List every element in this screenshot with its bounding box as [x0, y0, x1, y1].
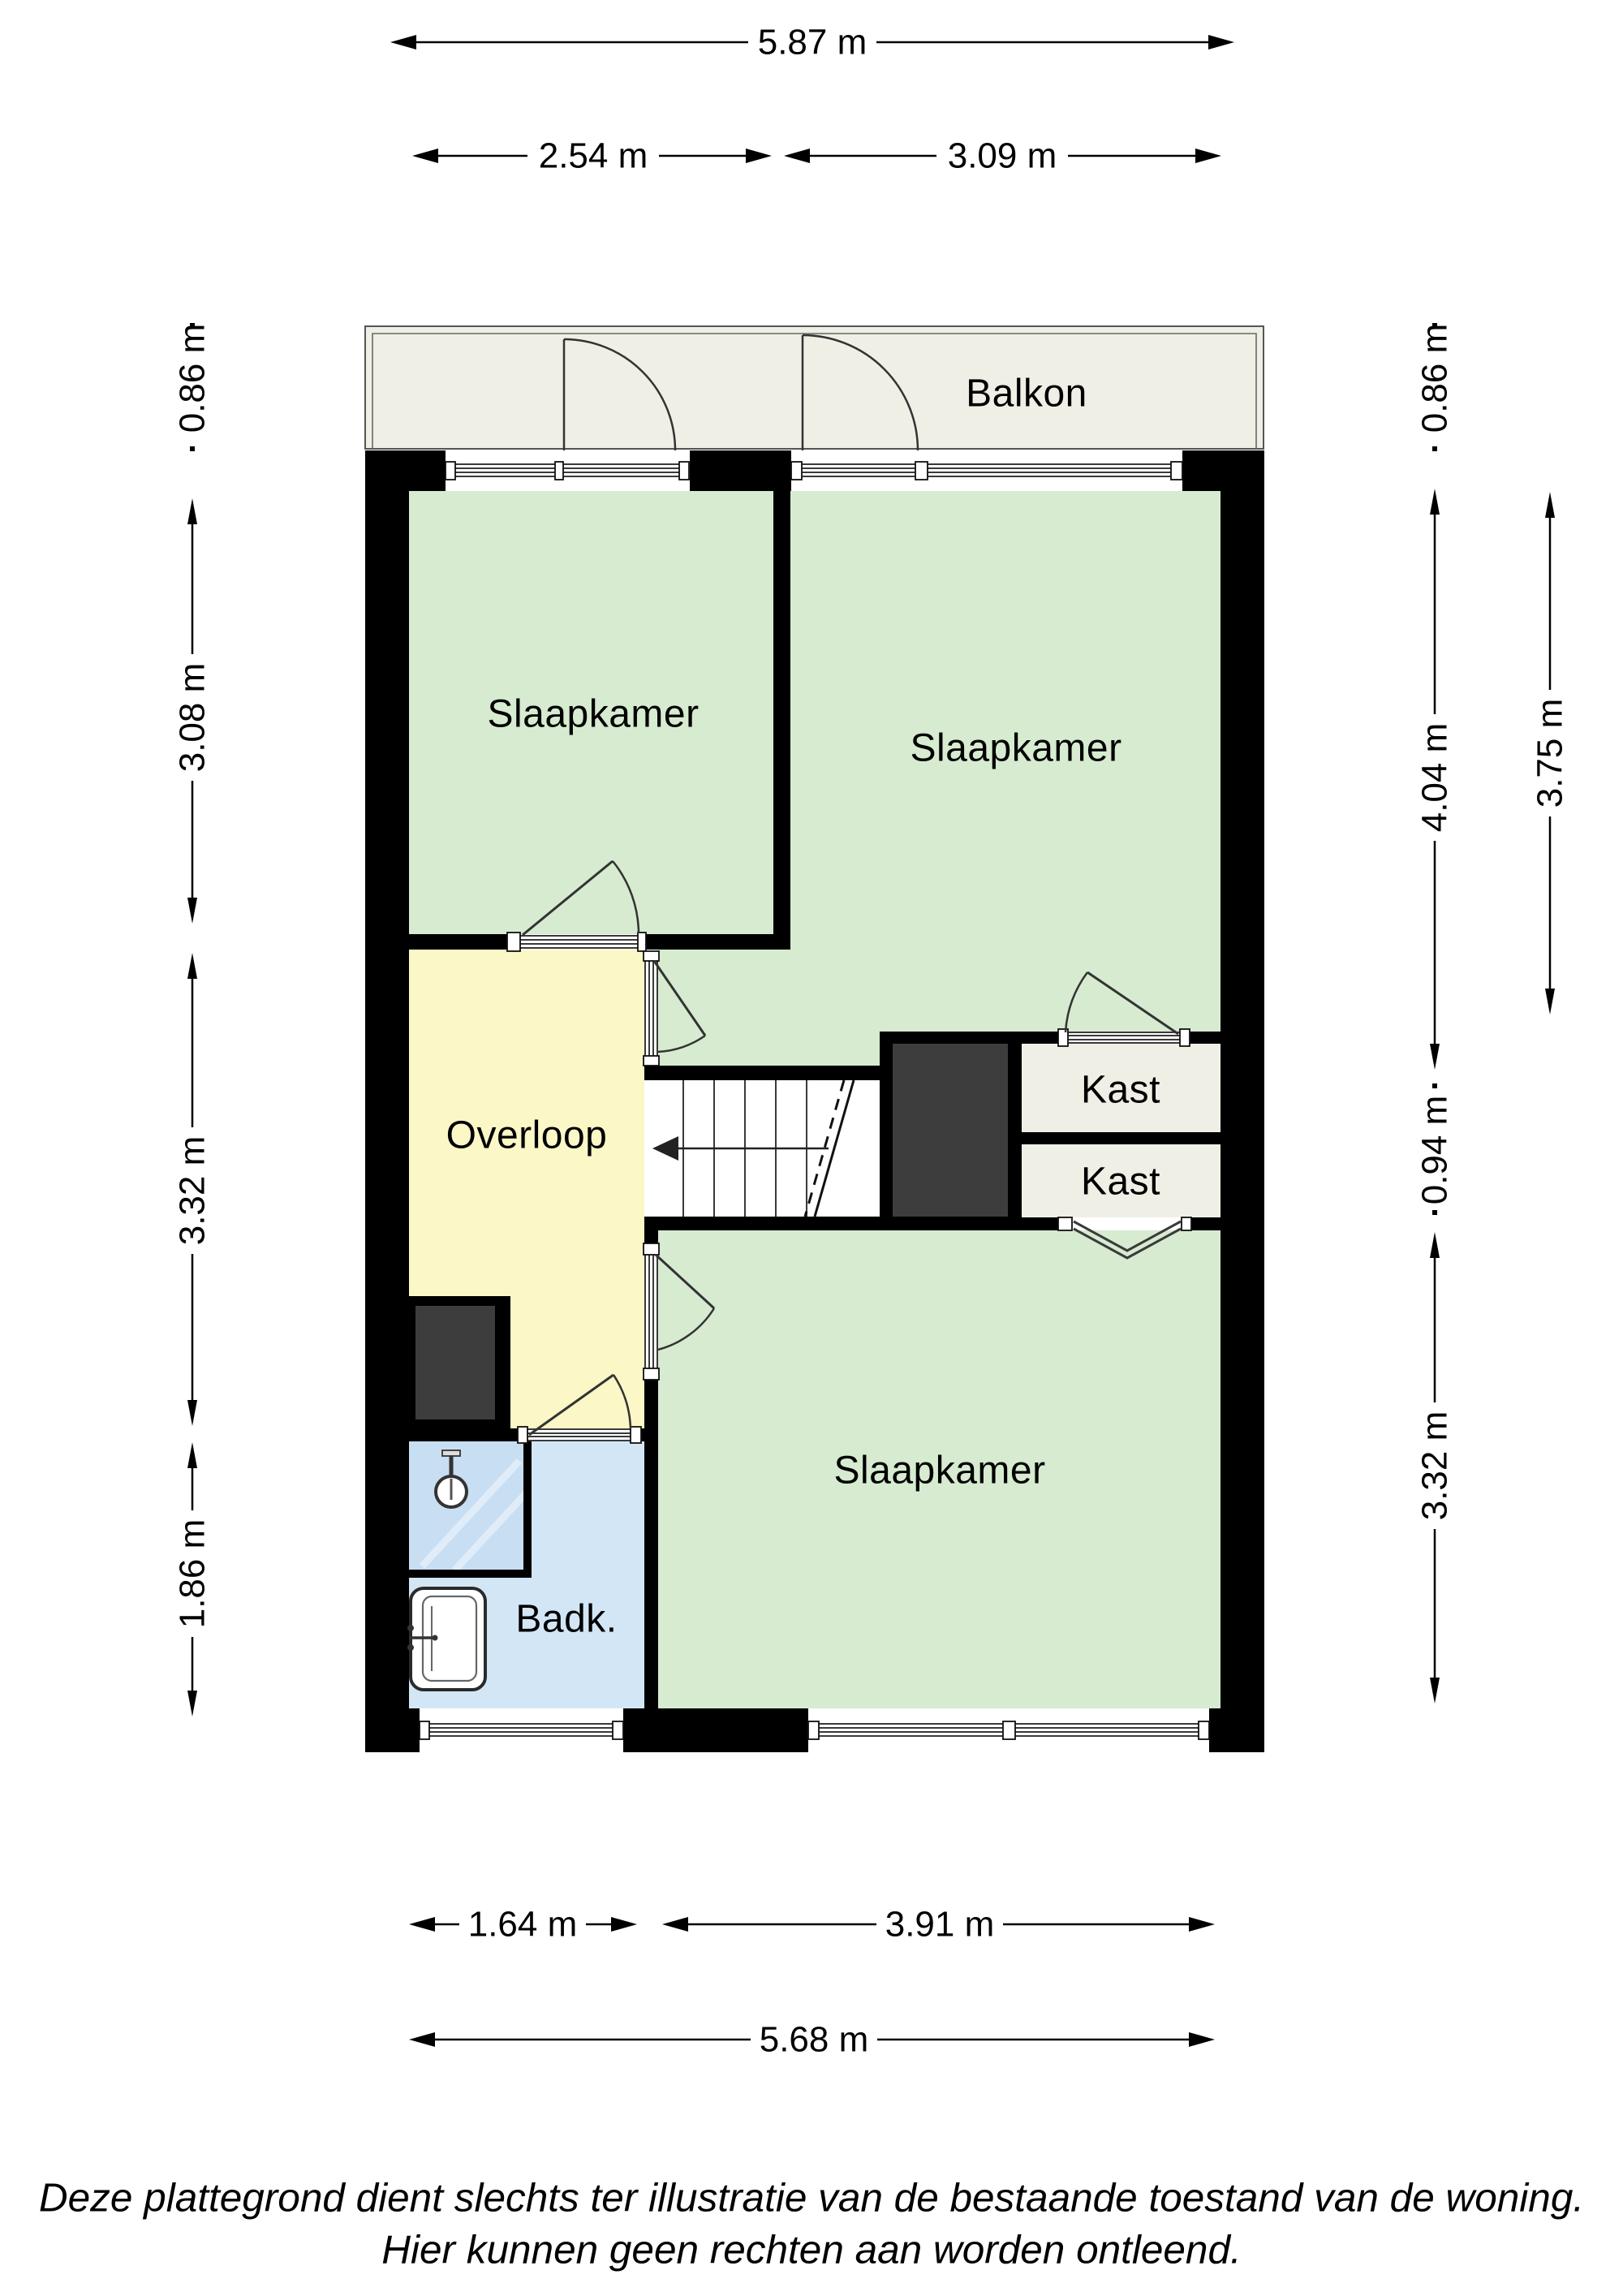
svg-text:4.04 m: 4.04 m	[1415, 723, 1455, 833]
svg-text:0.86 m: 0.86 m	[173, 324, 213, 433]
svg-text:0.86 m: 0.86 m	[1415, 324, 1455, 433]
svg-text:1.86 m: 1.86 m	[173, 1519, 213, 1629]
svg-text:Hier kunnen geen rechten aan w: Hier kunnen geen rechten aan worden ontl…	[381, 2228, 1242, 2272]
svg-text:3.32 m: 3.32 m	[173, 1136, 213, 1246]
svg-text:3.09 m: 3.09 m	[948, 136, 1057, 176]
svg-text:Slaapkamer: Slaapkamer	[910, 727, 1121, 770]
svg-text:3.32 m: 3.32 m	[1415, 1411, 1455, 1521]
svg-text:Kast: Kast	[1081, 1161, 1160, 1204]
svg-text:5.87 m: 5.87 m	[758, 23, 867, 62]
svg-text:0.94 m: 0.94 m	[1415, 1096, 1455, 1205]
svg-text:3.08 m: 3.08 m	[173, 663, 213, 773]
svg-text:3.75 m: 3.75 m	[1530, 699, 1570, 808]
svg-text:Deze plattegrond dient slechts: Deze plattegrond dient slechts ter illus…	[39, 2176, 1584, 2221]
svg-text:5.68 m: 5.68 m	[760, 2020, 869, 2060]
svg-text:Slaapkamer: Slaapkamer	[487, 693, 699, 736]
svg-text:2.54 m: 2.54 m	[539, 136, 648, 176]
svg-text:Kast: Kast	[1081, 1069, 1160, 1112]
svg-text:3.91 m: 3.91 m	[885, 1905, 995, 1945]
svg-text:Slaapkamer: Slaapkamer	[833, 1450, 1045, 1493]
svg-text:Balkon: Balkon	[966, 373, 1087, 416]
svg-text:Badk.: Badk.	[515, 1598, 617, 1641]
svg-text:1.64 m: 1.64 m	[468, 1905, 578, 1945]
svg-text:Overloop: Overloop	[446, 1114, 608, 1157]
